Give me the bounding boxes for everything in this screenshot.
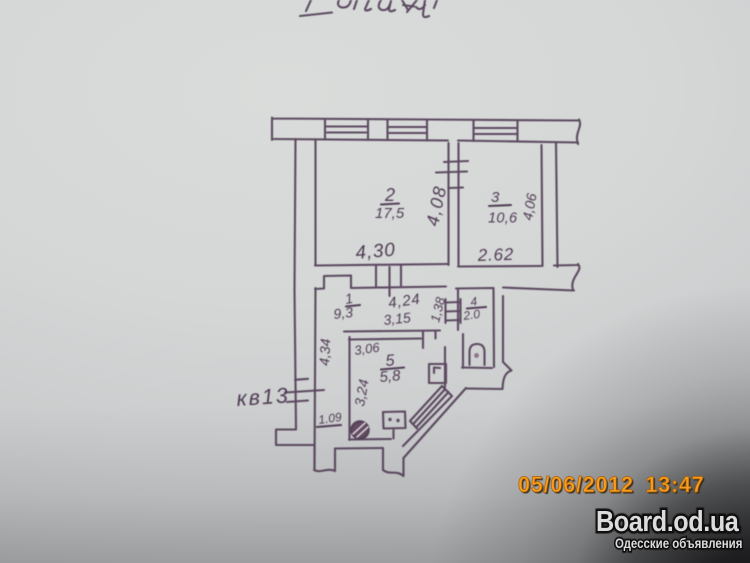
svg-text:4,06: 4,06 (519, 192, 540, 222)
svg-text:2.62: 2.62 (476, 245, 514, 265)
svg-text:17,5: 17,5 (375, 205, 405, 222)
svg-text:4,08: 4,08 (422, 184, 450, 228)
svg-text:2: 2 (384, 185, 395, 205)
svg-text:кв13: кв13 (236, 383, 291, 411)
svg-text:4,30: 4,30 (355, 240, 397, 264)
svg-text:3,24: 3,24 (351, 378, 372, 408)
svg-text:3,15: 3,15 (383, 309, 412, 328)
svg-text:3: 3 (491, 189, 500, 206)
svg-text:4,34: 4,34 (316, 338, 333, 366)
svg-text:3,06: 3,06 (353, 339, 381, 357)
svg-text:10,6: 10,6 (488, 211, 518, 227)
svg-text:4,24: 4,24 (387, 291, 421, 312)
